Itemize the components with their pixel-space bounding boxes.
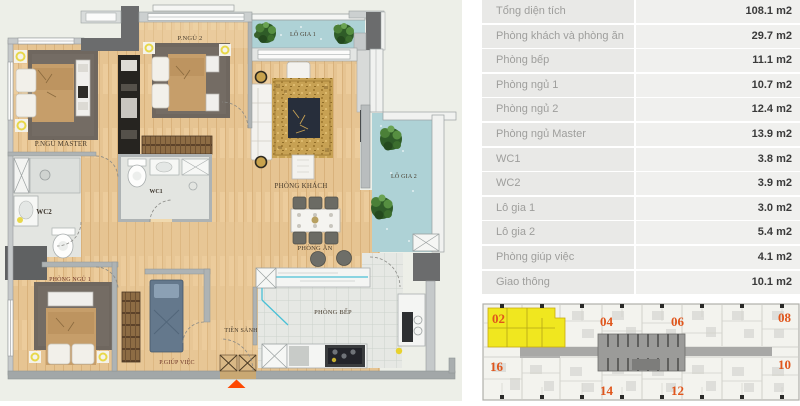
svg-text:LÔ GIA 2: LÔ GIA 2	[391, 172, 417, 180]
svg-text:10: 10	[778, 357, 791, 372]
svg-text:WC1: WC1	[149, 189, 162, 195]
svg-text:LÔ GIA 1: LÔ GIA 1	[290, 30, 316, 38]
svg-text:12: 12	[671, 383, 684, 398]
svg-text:PHÒNG NGỦ 1: PHÒNG NGỦ 1	[49, 275, 91, 283]
svg-text:PHÒNG KHÁCH: PHÒNG KHÁCH	[275, 182, 328, 190]
svg-text:06: 06	[671, 314, 685, 329]
svg-text:TIỀN SẢNH: TIỀN SẢNH	[224, 326, 258, 334]
svg-text:02: 02	[492, 311, 505, 326]
svg-text:16: 16	[490, 359, 504, 374]
svg-text:P.GIÚP VIỆC: P.GIÚP VIỆC	[159, 358, 195, 366]
svg-text:P.NGỦ MASTER: P.NGỦ MASTER	[35, 140, 88, 148]
svg-text:P.NGỦ 2: P.NGỦ 2	[178, 34, 203, 42]
svg-text:PHÒNG ĂN: PHÒNG ĂN	[297, 244, 332, 252]
svg-text:WC2: WC2	[36, 208, 52, 216]
svg-text:PHÒNG BẾP: PHÒNG BẾP	[314, 308, 352, 316]
svg-text:08: 08	[778, 310, 792, 325]
svg-text:04: 04	[600, 314, 614, 329]
svg-text:14: 14	[600, 383, 614, 398]
